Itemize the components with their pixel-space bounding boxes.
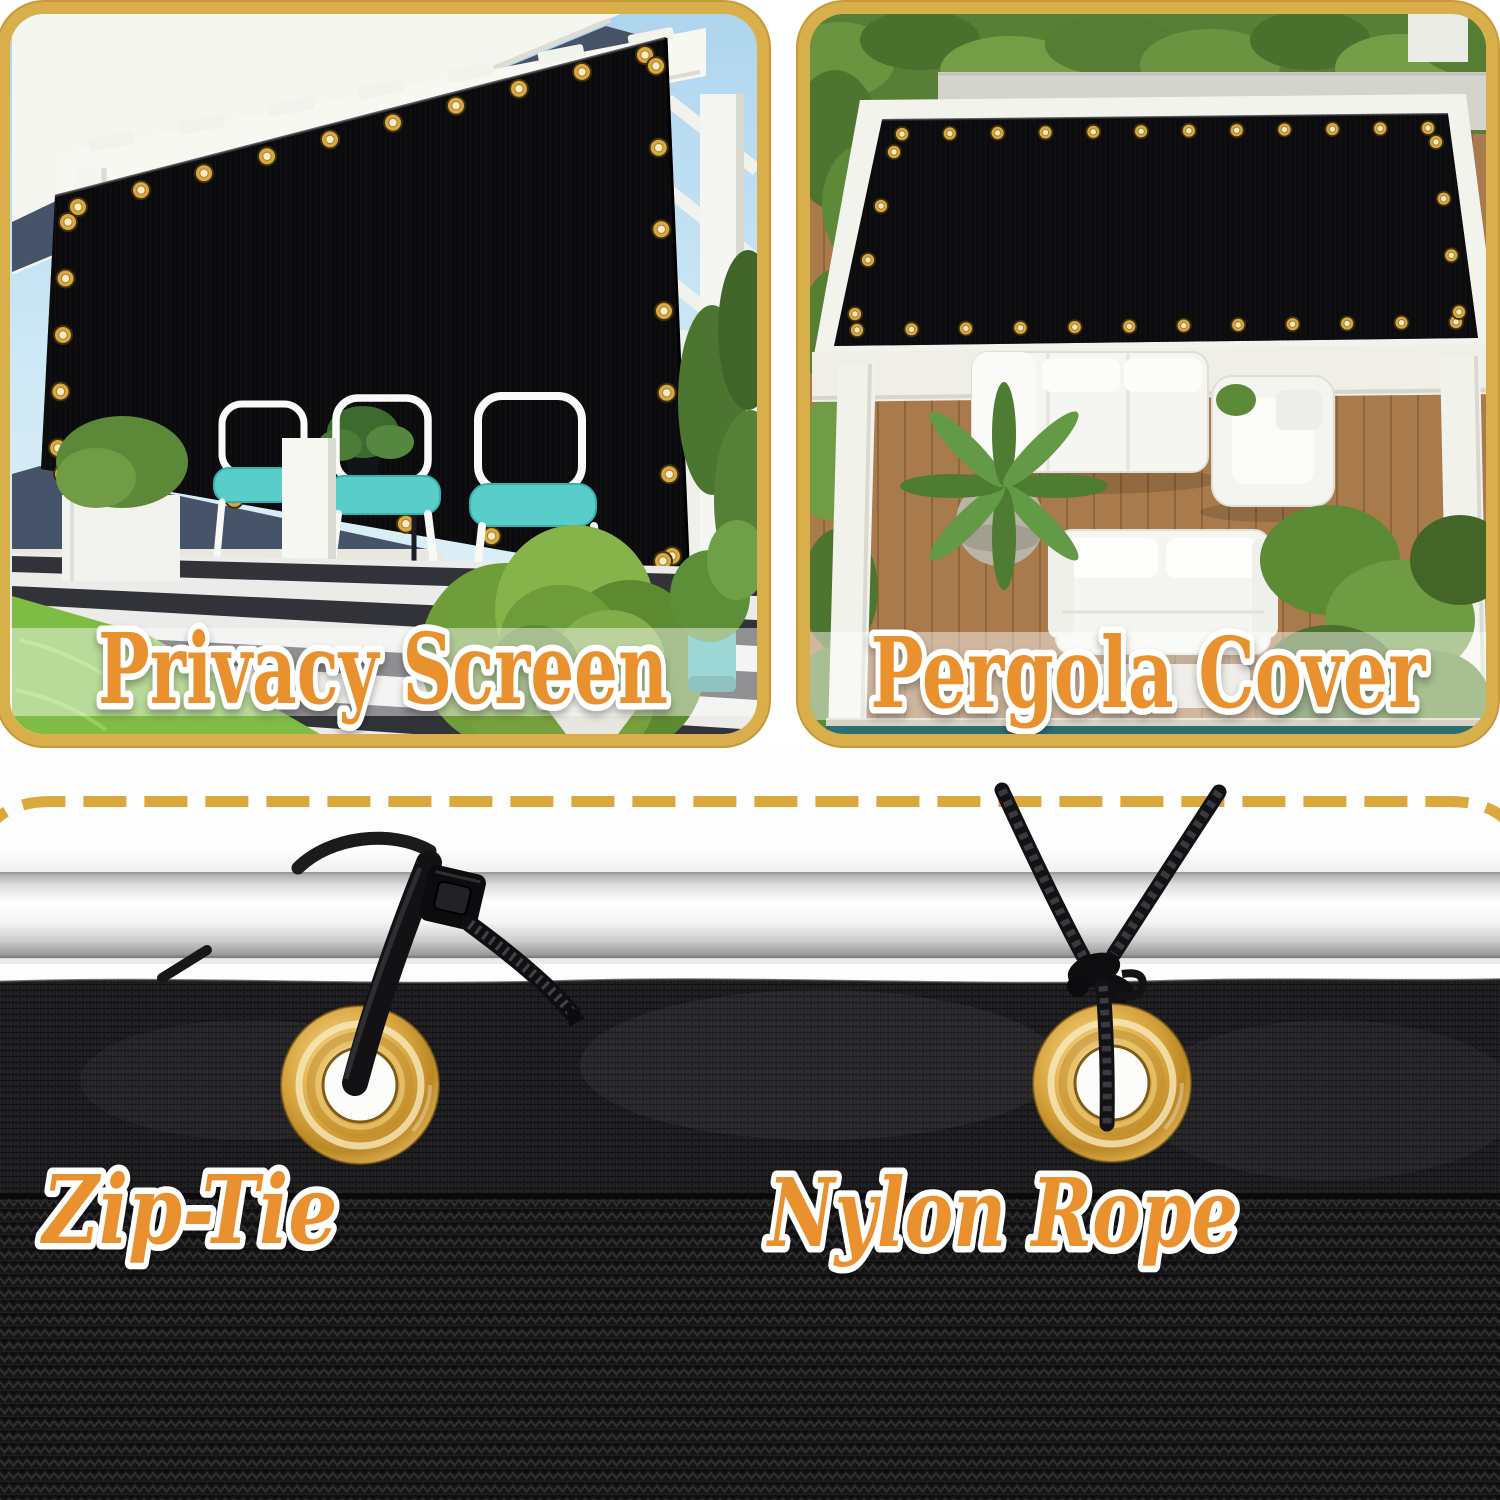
product-image-canvas: Zip-Tie Nylon Rope [0, 0, 1500, 1500]
panel-privacy-screen: Privacy Screen [0, 2, 769, 746]
pergola-cover-photo: Pergola Cover [810, 14, 1486, 734]
nylon-rope-label: Nylon Rope [766, 1158, 1238, 1269]
privacy-screen-label: Privacy Screen [98, 612, 668, 726]
mounting-pole [0, 872, 1500, 964]
zip-tie-label: Zip-Tie [39, 1155, 337, 1266]
privacy-screen-photo: Privacy Screen [10, 14, 757, 734]
panel-pergola-cover: Pergola Cover [798, 2, 1498, 746]
pergola-cover-label: Pergola Cover [871, 616, 1427, 730]
black-pergola-cover [834, 114, 1478, 346]
palm-plant [900, 382, 1108, 590]
